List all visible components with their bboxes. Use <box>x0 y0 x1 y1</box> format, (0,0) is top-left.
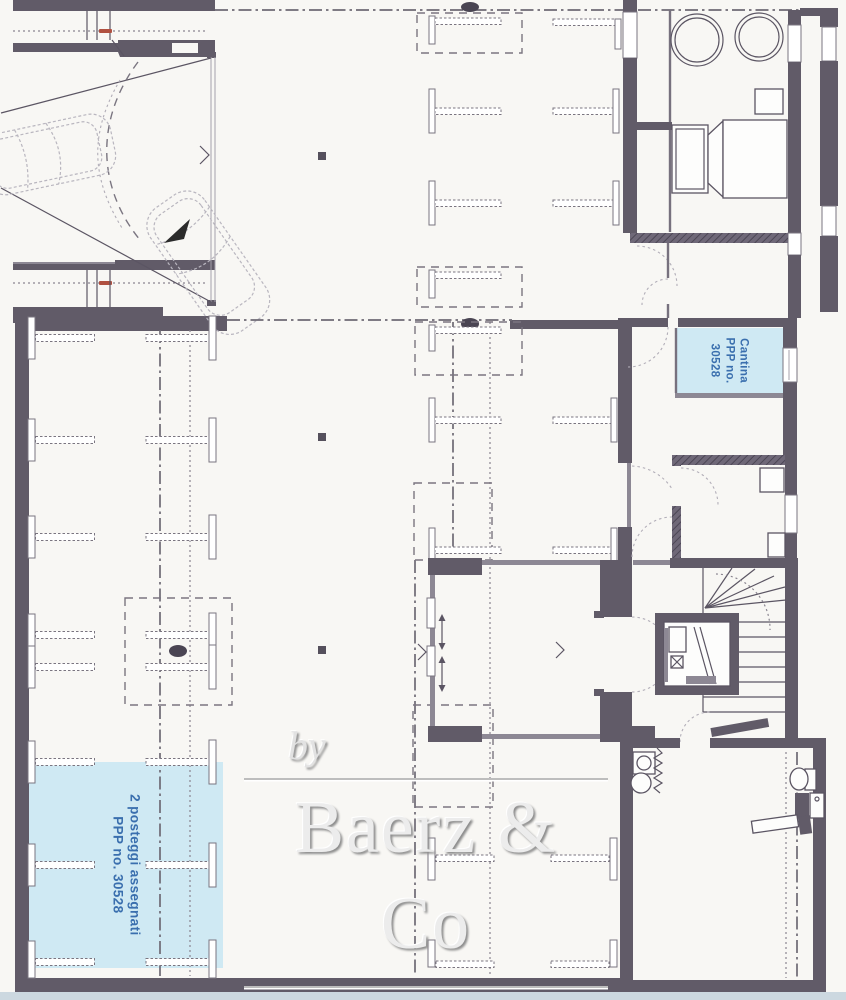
technical-rooms <box>623 0 838 318</box>
toilet <box>790 768 816 790</box>
garage-ramp-area <box>0 0 278 343</box>
stairwell <box>632 558 798 742</box>
vestibule <box>418 558 670 742</box>
scan-edge <box>0 992 846 1000</box>
cantina-highlight <box>675 328 783 393</box>
parking-dividers-center <box>413 13 621 968</box>
sliding-door-arrows <box>439 614 446 692</box>
door-leaf <box>798 815 812 834</box>
door-leaf <box>751 815 798 833</box>
ramp-marker-red-top <box>99 29 112 33</box>
elevator <box>655 613 739 695</box>
floor-plan-drawing <box>0 0 846 1000</box>
door-leaf <box>710 718 769 737</box>
tanks <box>671 13 783 66</box>
direction-arrow <box>164 219 190 243</box>
chevron-right-icon <box>556 642 564 658</box>
chevron-right-icon <box>200 146 209 164</box>
basement-room <box>620 700 826 995</box>
boiler <box>672 120 787 198</box>
garage-east-wall <box>618 323 680 560</box>
scanned-floor-plan-page: Cantina PPP no. 30528 2 posteggi assegna… <box>0 0 846 1000</box>
chevron-right-icon <box>418 644 426 660</box>
car-outline-turning <box>0 110 119 198</box>
